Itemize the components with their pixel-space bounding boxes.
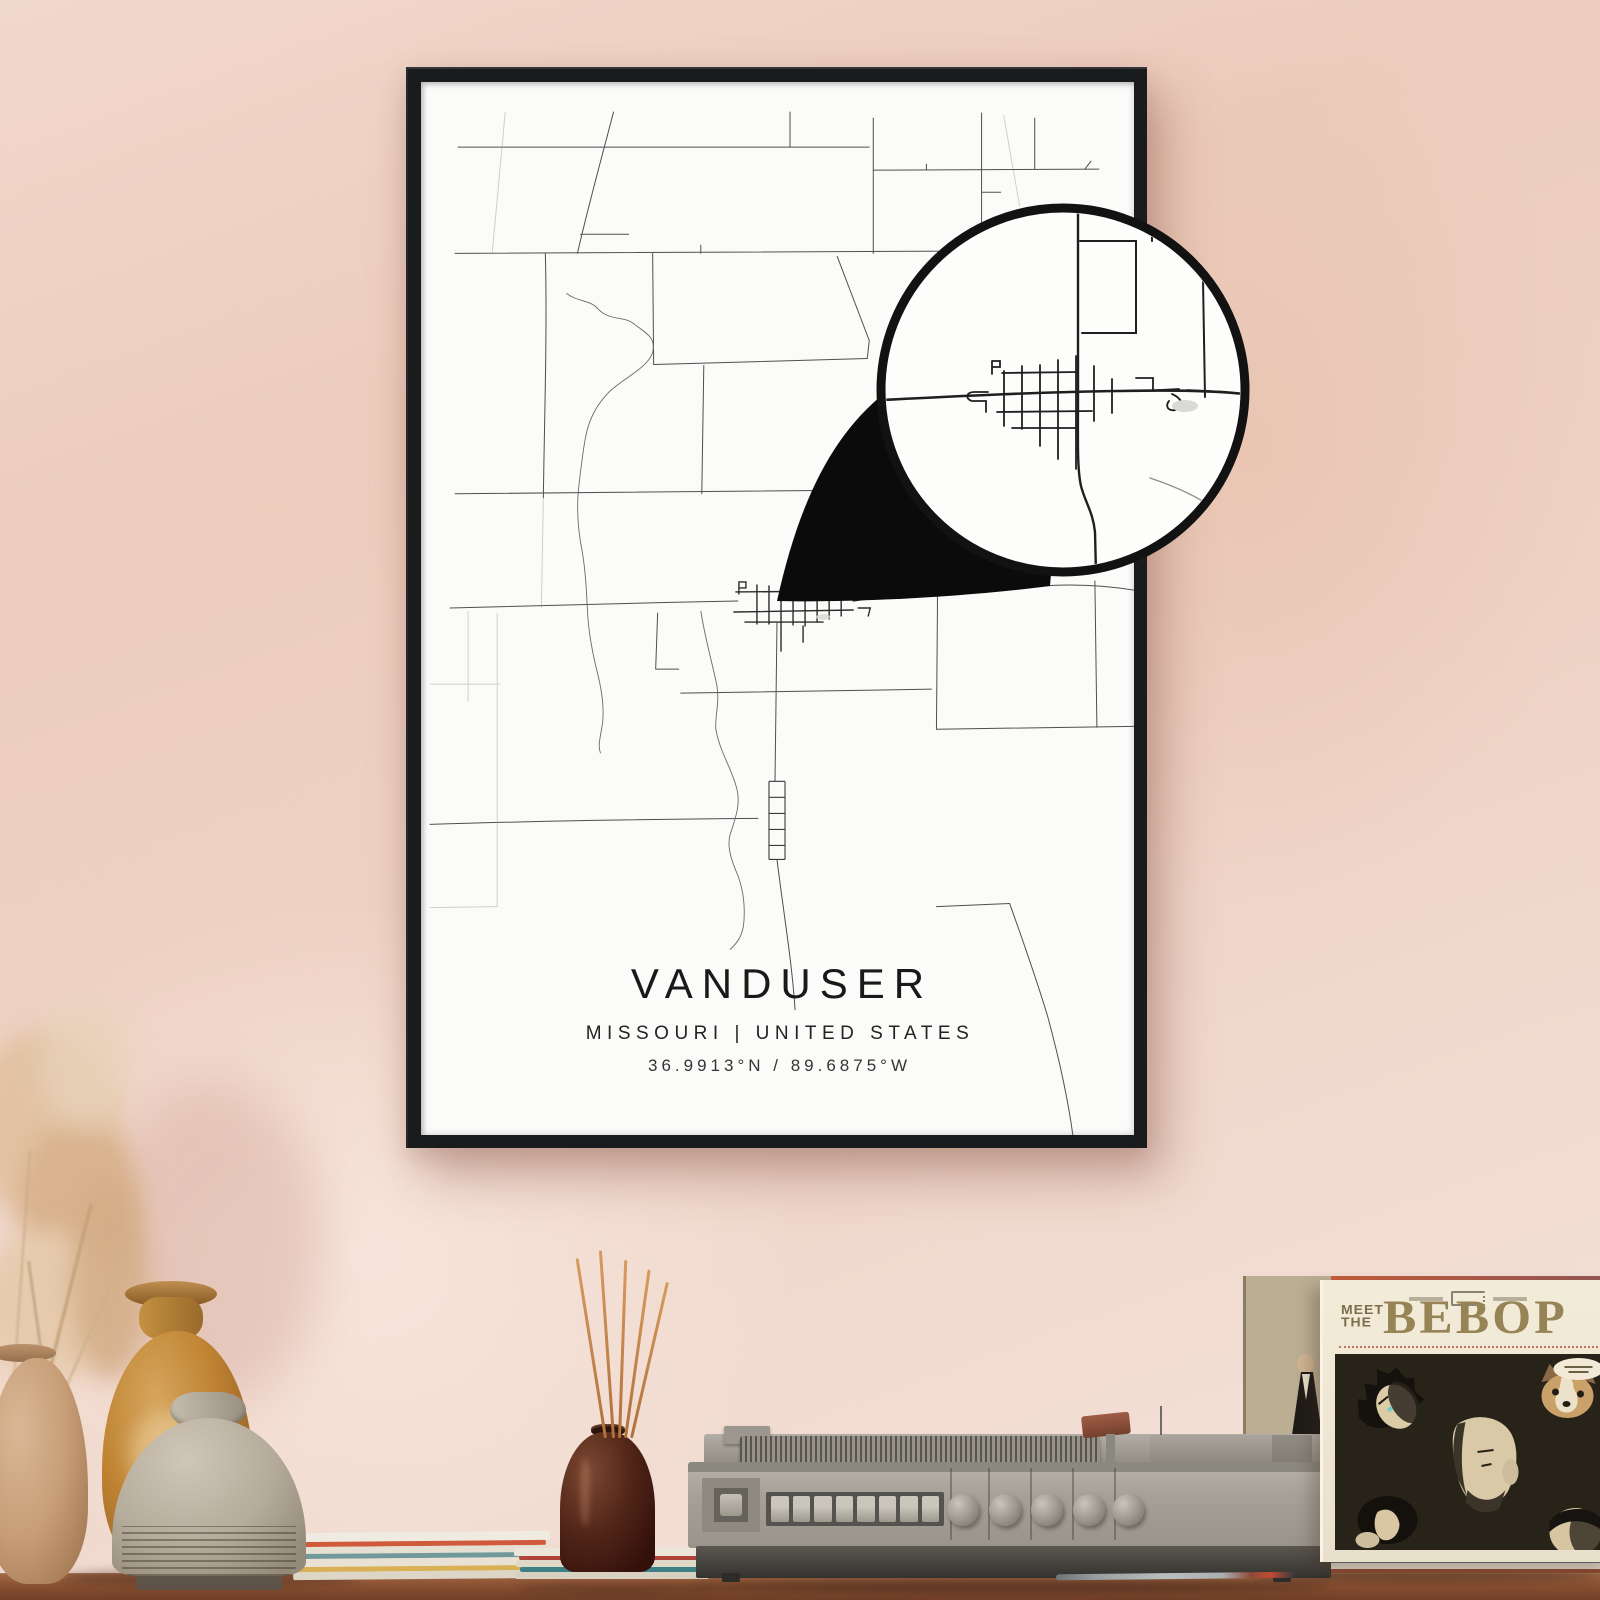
sleeve-title-main: BEBOP: [1383, 1290, 1568, 1345]
turntable-platter: [740, 1436, 1100, 1464]
poster-frame: VANDUSER MISSOURI | UNITED STATES 36.991…: [406, 67, 1147, 1148]
hamlet-ladder: [769, 781, 785, 859]
ed-face: [1550, 1508, 1600, 1550]
bottle-highlight: [580, 1458, 590, 1526]
incense-reeds: [566, 1248, 666, 1438]
pampas-plume: [40, 1000, 130, 1130]
magazine: [515, 1572, 709, 1579]
poster-coordinates: 36.9913°N / 89.6875°W: [421, 1056, 1134, 1076]
preset-button: [836, 1496, 854, 1522]
figure-head: [1297, 1354, 1314, 1374]
tone-knob: [989, 1494, 1021, 1526]
stream-layer: [566, 293, 744, 949]
tonearm-post: [1106, 1434, 1115, 1464]
vase-gray-bell: [112, 1392, 306, 1590]
player-foot: [722, 1573, 740, 1582]
faint-roads-layer: [430, 112, 1128, 908]
sleeve-title-small: MEET THE: [1341, 1304, 1384, 1329]
selector-knob: [1112, 1494, 1144, 1526]
sleeve-red-tagline: [1339, 1346, 1600, 1348]
bottle-body: [560, 1432, 655, 1572]
poster-paper: VANDUSER MISSOURI | UNITED STATES 36.991…: [421, 82, 1134, 1135]
town-grid: [734, 582, 874, 651]
volume-knob: [947, 1494, 979, 1526]
record-sleeve: MEET THE BEBOP: [1320, 1280, 1600, 1562]
preset-button: [879, 1496, 897, 1522]
power-button: [720, 1494, 742, 1516]
preset-button: [857, 1496, 875, 1522]
pond: [816, 614, 830, 620]
sleeve-artwork: [1335, 1354, 1600, 1550]
vase-tan-jug: [0, 1344, 88, 1584]
player-control-deck: [1150, 1435, 1312, 1462]
record-player: [688, 1408, 1333, 1588]
poster-caption: VANDUSER MISSOURI | UNITED STATES 36.991…: [421, 960, 1134, 1076]
preset-button: [900, 1496, 918, 1522]
sleeve-art-svg: [1335, 1354, 1600, 1550]
gray-vase-ribs: [122, 1526, 296, 1576]
preset-button: [793, 1496, 811, 1522]
poster-subtitle: MISSOURI | UNITED STATES: [421, 1023, 1134, 1045]
tuning-knob: [1073, 1494, 1105, 1526]
sleeve-behind-edge: [1331, 1276, 1600, 1280]
product-photo-scene: { "poster": { "title": "VANDUSER", "subt…: [0, 0, 1600, 1600]
poster-title: VANDUSER: [421, 960, 1134, 1008]
power-section: [702, 1478, 760, 1532]
gray-vase-base: [136, 1576, 282, 1590]
preset-button-strip: [766, 1492, 944, 1526]
power-button-well: [714, 1488, 748, 1522]
preset-button: [814, 1496, 832, 1522]
balance-knob: [1031, 1494, 1063, 1526]
preset-button: [922, 1496, 940, 1522]
jug-body: [0, 1358, 88, 1584]
preset-button: [771, 1496, 789, 1522]
incense-stack-shadow: [515, 1584, 715, 1594]
sleeve-word-the: THE: [1341, 1316, 1384, 1328]
incense-bottle: [560, 1424, 655, 1572]
incense-reed: [618, 1260, 627, 1438]
